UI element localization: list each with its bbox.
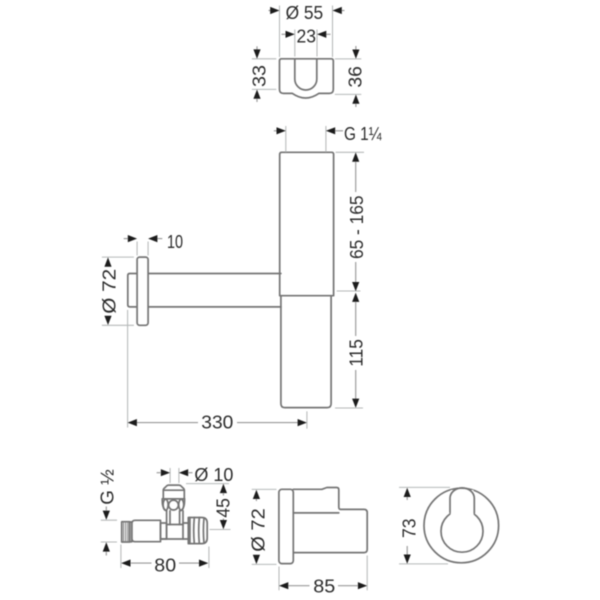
svg-text:10: 10	[167, 231, 183, 252]
svg-text:G 1¼: G 1¼	[344, 123, 382, 144]
svg-text:33: 33	[248, 65, 269, 87]
svg-text:73: 73	[399, 519, 420, 539]
svg-text:Ø 55: Ø 55	[286, 2, 324, 23]
svg-text:115: 115	[345, 339, 366, 367]
svg-text:Ø 72: Ø 72	[248, 508, 269, 552]
svg-text:45: 45	[212, 498, 233, 518]
svg-text:Ø 10: Ø 10	[194, 464, 233, 485]
svg-text:330: 330	[201, 412, 233, 433]
svg-text:65 - 165: 65 - 165	[346, 196, 367, 259]
svg-text:85: 85	[313, 576, 335, 597]
svg-text:36: 36	[345, 66, 366, 88]
svg-text:Ø 72: Ø 72	[99, 269, 120, 314]
svg-text:G ½: G ½	[96, 469, 117, 505]
svg-text:23: 23	[297, 26, 317, 47]
svg-text:80: 80	[154, 555, 176, 576]
